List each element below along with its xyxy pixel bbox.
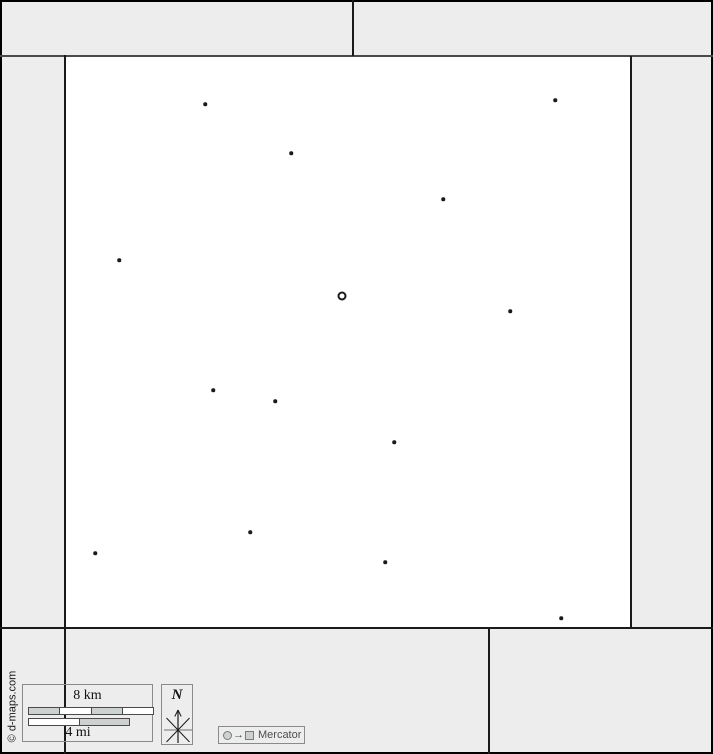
square-icon	[245, 731, 254, 740]
circle-icon	[223, 731, 232, 740]
projection-legend: → Mercator	[218, 726, 305, 744]
scale-segment	[59, 708, 90, 714]
scale-segment	[29, 708, 59, 714]
map-page: 8 km 4 mi N → Mercator © d-maps.com	[0, 0, 713, 754]
scale-segment	[122, 708, 153, 714]
map-bottom-border-line	[0, 627, 713, 629]
compass: N	[161, 684, 193, 745]
scale-km-bar	[28, 707, 154, 715]
projection-label: Mercator	[258, 729, 301, 741]
map-area	[66, 57, 630, 627]
bottom-band-divider-line	[488, 628, 490, 754]
top-band-divider-line	[352, 0, 354, 56]
north-label: N	[162, 687, 192, 704]
attribution: © d-maps.com	[7, 662, 20, 752]
scale-bar: 8 km 4 mi	[22, 684, 153, 742]
map-left-border-line	[64, 55, 66, 754]
map-top-border-line	[0, 55, 713, 57]
scale-segment	[91, 708, 122, 714]
scale-km-label: 8 km	[23, 688, 152, 704]
arrow-right-icon: →	[233, 730, 244, 741]
map-right-border-line	[630, 56, 632, 628]
scale-mi-label: 4 mi	[23, 725, 133, 741]
compass-north-arrow-icon	[162, 707, 194, 745]
